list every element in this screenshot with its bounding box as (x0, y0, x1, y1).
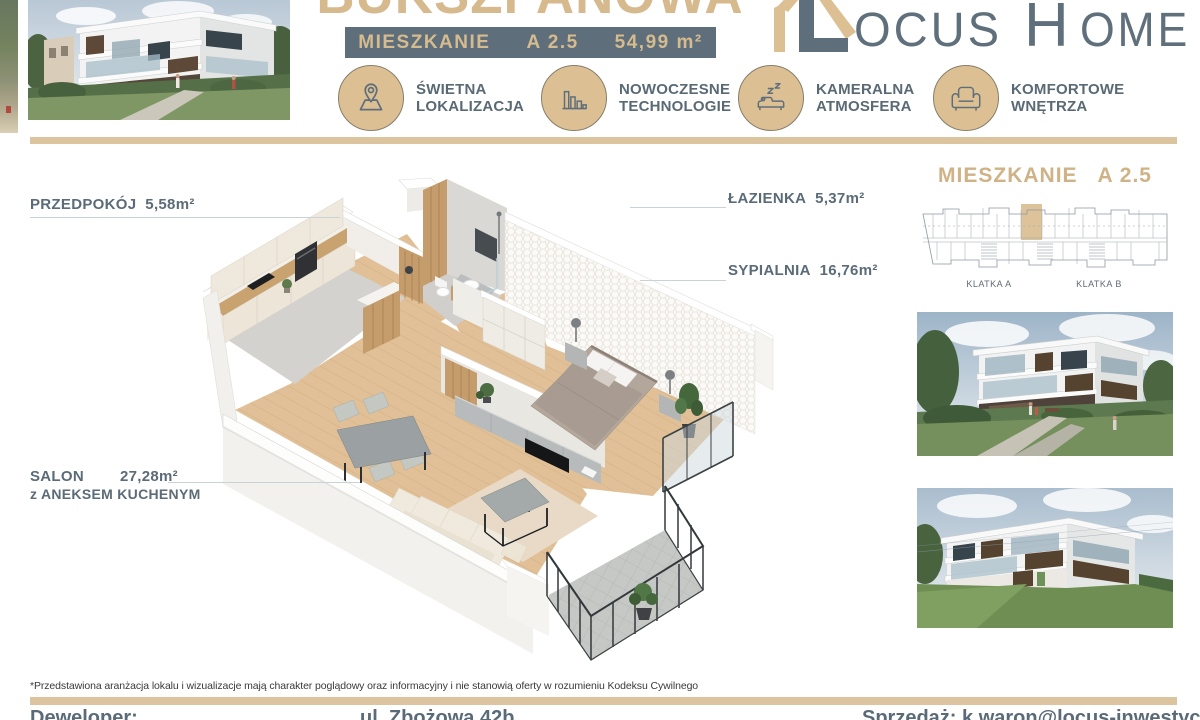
toilet (437, 288, 450, 297)
badge-label: MIESZKANIE (358, 32, 490, 54)
floor-schematic (917, 198, 1173, 276)
footer-divider (30, 697, 1177, 705)
header-divider (30, 137, 1177, 144)
sleeping-sofa-icon (752, 79, 790, 117)
left-photo-strip (0, 0, 18, 133)
brochure-page: BUKSZPANOWA MIESZKANIE A 2.5 54,99 m² OC… (0, 0, 1200, 720)
stairwell-a-label: KLATKA A (939, 279, 1039, 289)
developer-label: Deweloper: (30, 707, 138, 720)
logo-house-roof (778, 0, 856, 39)
badge-unit: A 2.5 (526, 32, 578, 54)
feature-technology: NOWOCZESNE TECHNOLOGIE (541, 65, 731, 131)
feature-label: ŚWIETNA (416, 81, 524, 98)
address: ul. Zbożowa 42b (360, 707, 514, 720)
room-label-przedpokoj: PRZEDPOKÓJ 5,58m² (30, 196, 195, 213)
building-photo-2 (917, 312, 1173, 456)
leader-line (30, 217, 340, 218)
logo-house-wall (774, 2, 785, 52)
badge-area: 54,99 m² (615, 32, 703, 54)
logo-text-h: H (1024, 0, 1069, 58)
shower-icon (497, 212, 502, 217)
coat-icon (405, 266, 413, 274)
map-pin-icon (352, 79, 390, 117)
leader-line (640, 280, 726, 281)
highlighted-unit (1021, 204, 1042, 240)
unit-badge: MIESZKANIE A 2.5 54,99 m² (345, 27, 716, 58)
building-photo-3 (917, 488, 1173, 628)
sidebar-heading: MIESZKANIE A 2.5 (917, 164, 1173, 188)
logo-text-ome: OME (1080, 4, 1190, 57)
leader-line (168, 482, 360, 483)
room-label-lazienka: ŁAZIENKA 5,37m² (728, 190, 865, 207)
locus-home-logo: OCUS H OME (742, 0, 1197, 58)
logo-text-ocus: OCUS (854, 4, 1002, 57)
floorplan-3d (195, 158, 775, 693)
armchair-icon (947, 79, 985, 117)
feature-atmosphere: KAMERALNA ATMOSFERA (738, 65, 914, 131)
feature-location: ŚWIETNA LOKALIZACJA (338, 65, 524, 131)
stairwell-hatch (981, 244, 1105, 259)
disclaimer: *Przedstawiona aranżacja lokalu i wizual… (30, 680, 698, 692)
project-title: BUKSZPANOWA (295, 0, 765, 26)
leader-line (630, 207, 726, 208)
header-building-photo (28, 0, 290, 120)
bar-chart-icon (555, 79, 593, 117)
sales-contact: Sprzedaż: k.waron@locus-inwestycje.pl (862, 707, 1200, 720)
room-label-sypialnia: SYPIALNIA 16,76m² (728, 262, 878, 279)
feature-interiors: KOMFORTOWE WNĘTRZA (933, 65, 1124, 131)
stairwell-b-label: KLATKA B (1049, 279, 1149, 289)
room-label-salon-suffix: z ANEKSEM KUCHENYM (30, 486, 201, 502)
